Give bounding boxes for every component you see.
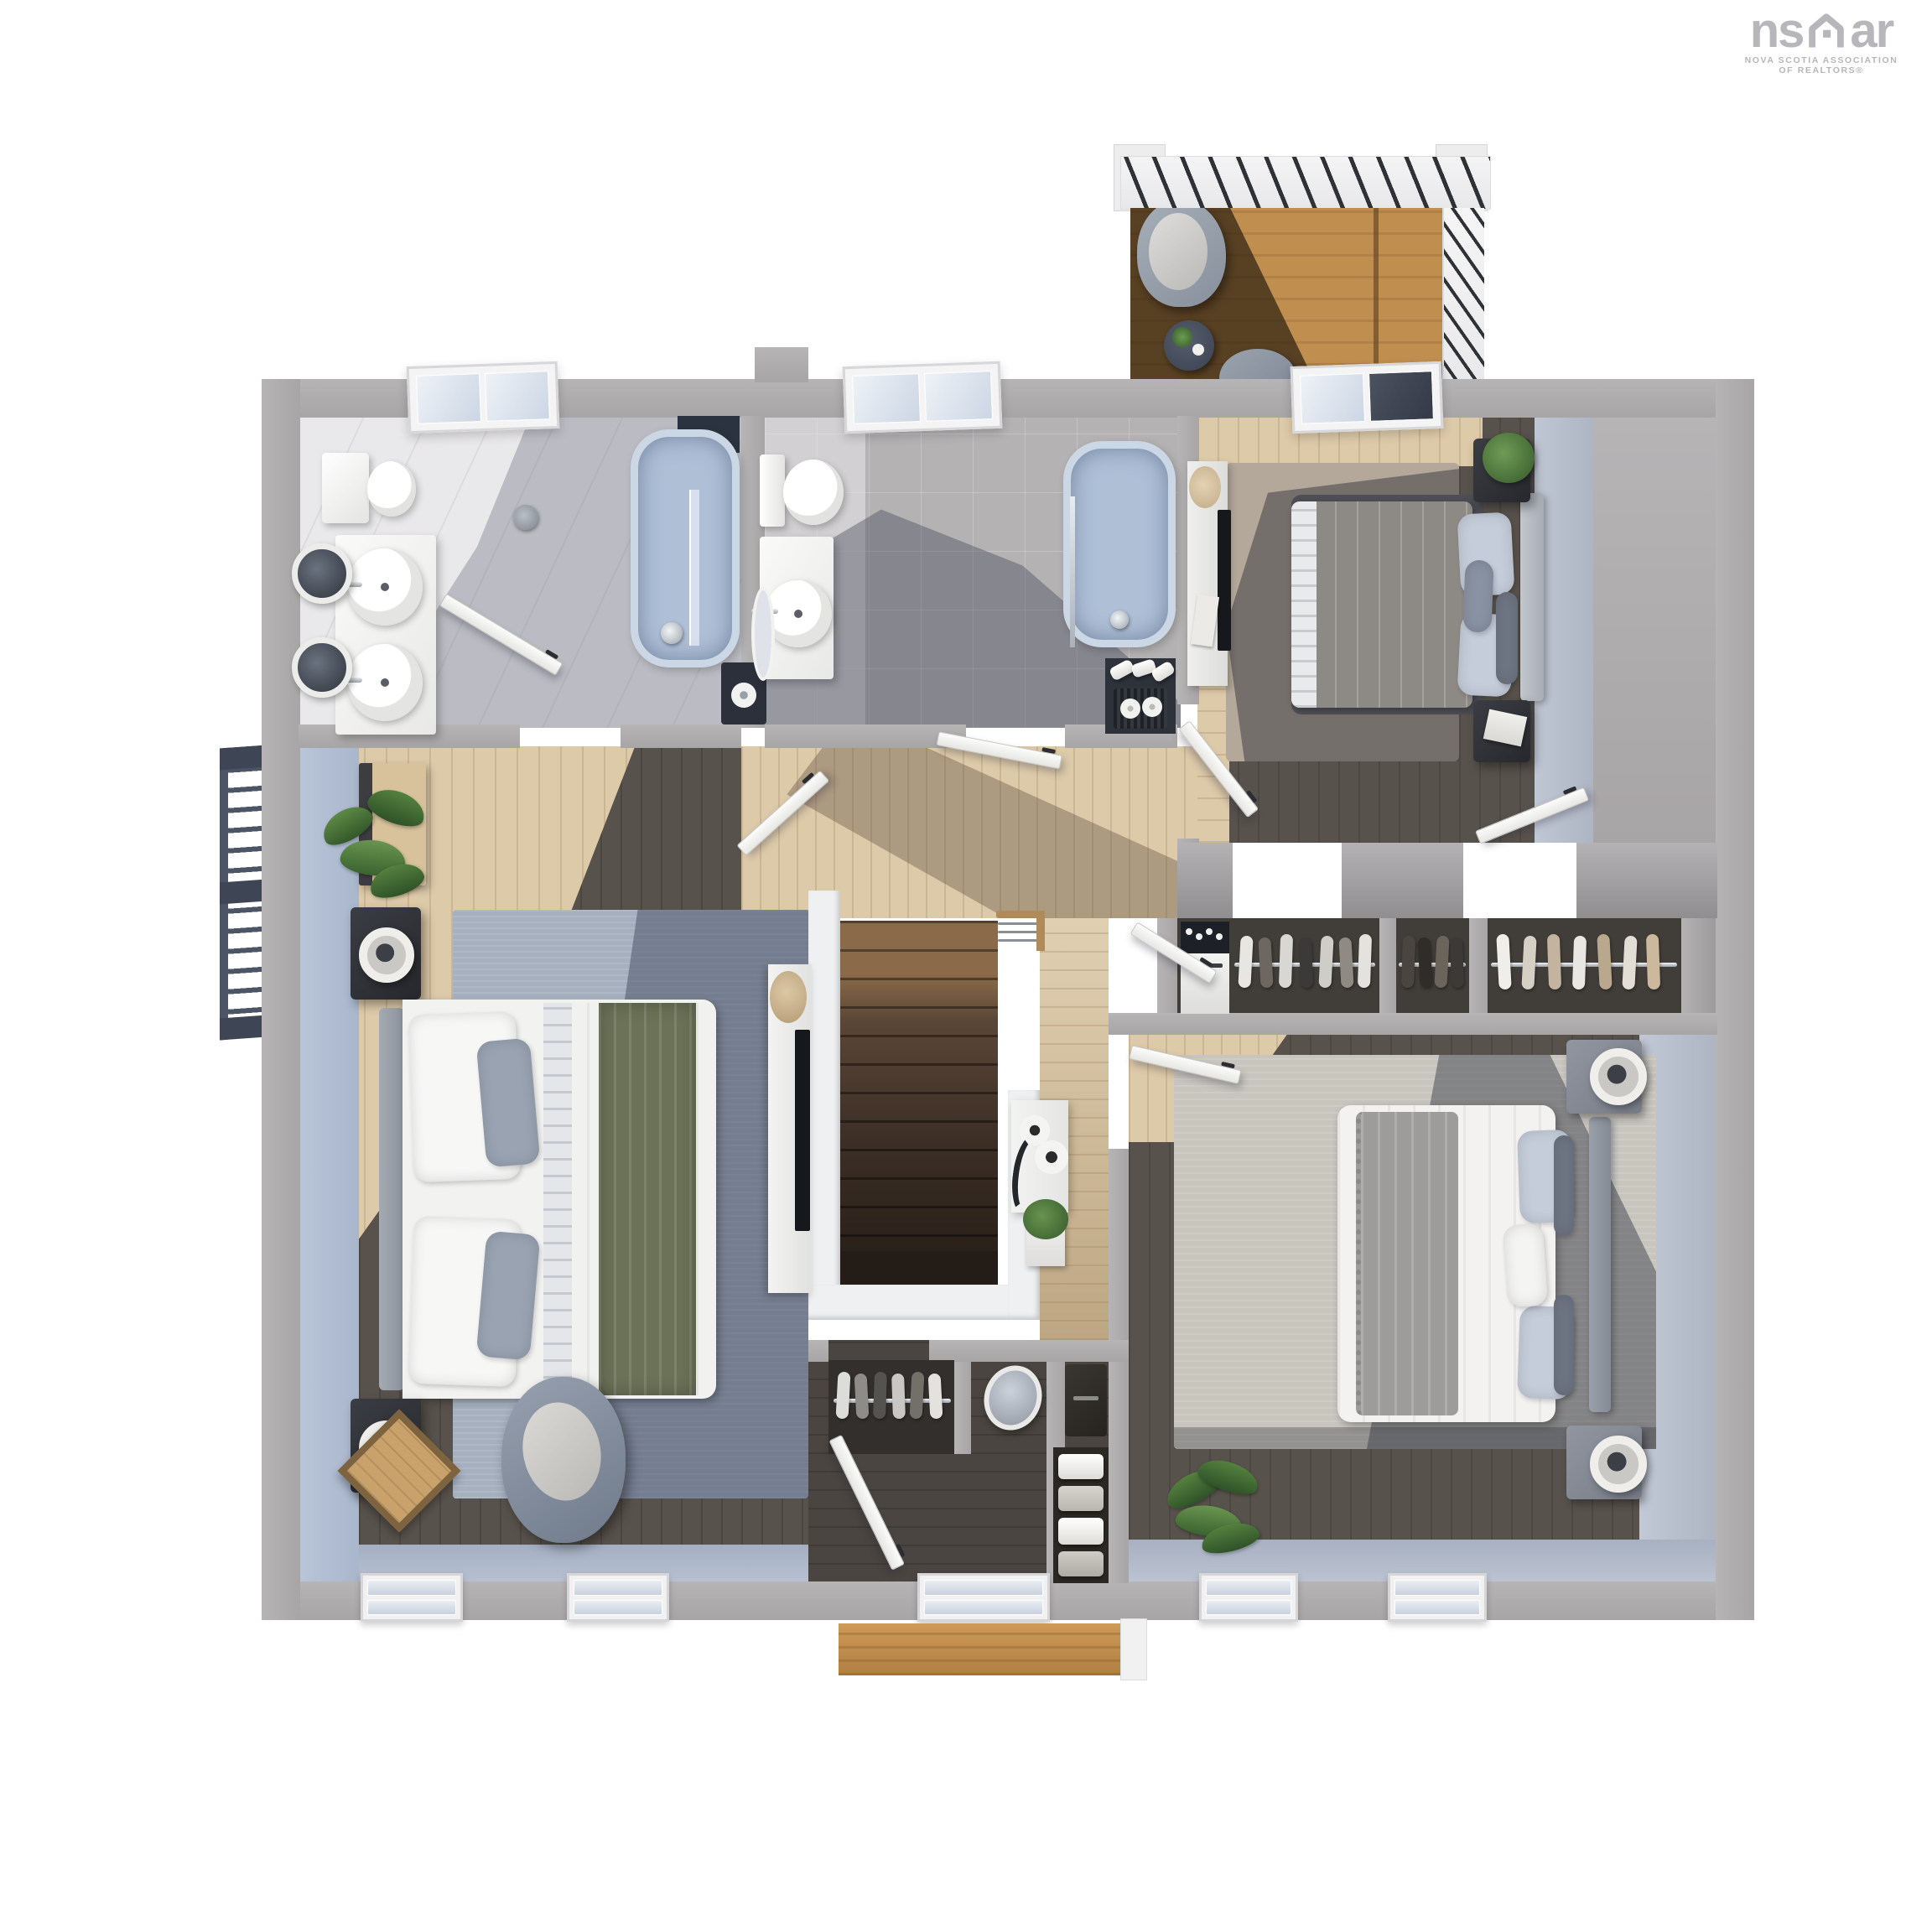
skylight-bedroom1: [1291, 361, 1444, 434]
window-pane: [1394, 1600, 1480, 1616]
leaning-mirror: [751, 587, 775, 681]
wall-closet-bottom: [1109, 1013, 1717, 1035]
linen-nook: [1105, 658, 1176, 734]
folded-clothes: [1058, 1454, 1104, 1479]
window-pane: [1206, 1600, 1291, 1616]
folded-clothes: [1058, 1551, 1104, 1576]
hanging-clothes: [1279, 934, 1293, 988]
bedroom1-outer-wall-top-view: [1593, 416, 1717, 843]
staircase: [840, 921, 998, 1251]
balcony-deck: [1130, 208, 1442, 387]
hanging-clothes: [1299, 937, 1313, 988]
pillow-gray: [476, 1230, 541, 1360]
pillow-dark: [1554, 1295, 1574, 1395]
hanging-clothes: [1450, 937, 1464, 988]
window-primary-1: [361, 1573, 463, 1622]
logo-subtitle-line1: NOVA SCOTIA ASSOCIATION: [1721, 55, 1922, 65]
shower-glass: [689, 490, 699, 646]
chair-cushion: [1149, 213, 1207, 290]
hanging-clothes: [873, 1372, 887, 1419]
porch-roof-trim: [1120, 1618, 1147, 1680]
throw-green: [599, 1003, 696, 1395]
window-pane: [924, 1600, 1043, 1616]
tub-faucet: [661, 622, 683, 644]
skylight-pane: [1300, 373, 1365, 424]
skylight-pane: [924, 371, 993, 422]
balcony-lounge-chair: [1137, 208, 1226, 307]
vanity-sink: [347, 644, 423, 721]
logo-text-ns: ns: [1750, 12, 1804, 50]
toilet-tank: [760, 454, 785, 527]
nsar-logo: ns ar NOVA SCOTIA ASSOCIATION OF REALTOR…: [1721, 12, 1922, 75]
hanging-clothes: [891, 1374, 906, 1419]
wall-bath2-south-a: [765, 724, 966, 748]
stair-wall-bottom: [808, 1285, 1040, 1320]
table-plant: [1172, 327, 1192, 347]
hall-console: [1011, 1100, 1068, 1213]
tv: [1218, 510, 1231, 651]
hanging-clothes: [836, 1372, 851, 1420]
bed: [1337, 1105, 1589, 1422]
wall-landing-top-b: [929, 1340, 1129, 1362]
palm-plant: [1164, 1457, 1265, 1566]
wall-bedroom1-south-a: [1177, 843, 1233, 918]
hanging-clothes: [1547, 934, 1561, 989]
potted-plant: [1483, 433, 1535, 483]
window-pane: [1394, 1580, 1480, 1596]
headboard: [1589, 1117, 1611, 1412]
wall-bedroom1-south-b: [1342, 843, 1463, 918]
hanging-clothes: [1646, 934, 1660, 989]
laundry-control-panel: [1181, 922, 1229, 953]
knob: [1186, 928, 1192, 935]
swivel-armchair: [501, 1377, 626, 1543]
hanging-clothes: [910, 1372, 925, 1420]
wall-bedroom1-south-c: [1576, 843, 1717, 918]
balcony-railing: [1442, 208, 1484, 387]
leaf: [364, 782, 430, 833]
folded-clothes: [1058, 1518, 1104, 1545]
railing-newel: [1036, 911, 1045, 951]
vanity-sink: [347, 548, 423, 626]
skylight-pane: [416, 373, 481, 424]
logo-text-ar: ar: [1850, 12, 1893, 50]
pillow-gray: [476, 1037, 541, 1167]
dried-flowers: [1189, 466, 1221, 508]
window-pane: [924, 1580, 1043, 1596]
window-bedroom2-1: [1199, 1573, 1298, 1622]
hanging-clothes: [1338, 937, 1353, 989]
chair-cushion: [514, 1395, 610, 1509]
toilet-bowl: [783, 460, 844, 525]
hanging-clothes: [854, 1374, 870, 1420]
closet-divider-1: [1379, 918, 1396, 1013]
window-pane: [367, 1580, 456, 1596]
table-cup: [1192, 344, 1204, 356]
landing-divider: [954, 1362, 971, 1454]
round-mirror: [292, 543, 352, 604]
handle: [1073, 1396, 1098, 1400]
toilet-tank: [322, 453, 369, 523]
wall-landing-top-a: [808, 1340, 828, 1362]
knob: [1206, 928, 1213, 935]
potted-plant-large: [320, 785, 434, 911]
skylight-ensuite: [407, 361, 560, 434]
hanging-clothes: [928, 1374, 943, 1420]
throw-gray: [1356, 1112, 1458, 1415]
skylight-pane: [1368, 371, 1434, 422]
pillow-lumbar-white: [1503, 1223, 1549, 1307]
dried-plant: [770, 971, 807, 1023]
bed: [1291, 495, 1545, 714]
ensuite-bathtub: [631, 429, 740, 667]
pergola-beams: [1120, 156, 1491, 210]
drum-lamp: [359, 927, 414, 983]
skylight-main-bath: [843, 361, 1003, 434]
hanging-clothes: [1572, 936, 1587, 989]
stair-wall-left: [808, 891, 840, 1320]
headboard: [1520, 493, 1544, 701]
duvet-fold-edge: [543, 1003, 572, 1395]
vanity-sink: [765, 580, 832, 647]
skylight-pane: [852, 373, 921, 424]
headboard: [379, 1008, 404, 1390]
paper-roll: [731, 683, 756, 708]
outer-wall-right: [1716, 379, 1754, 1620]
dark-dresser: [1065, 1364, 1107, 1436]
stair-void: [840, 1251, 998, 1286]
planter-greenery: [1023, 1199, 1068, 1239]
duvet-gray: [1291, 501, 1472, 708]
wall-closet-left: [1157, 918, 1177, 1013]
knob: [1196, 933, 1202, 940]
rolled-towel: [1120, 699, 1140, 719]
closet-right-face: [1681, 918, 1717, 1013]
tv: [795, 1030, 810, 1231]
pillow-lumbar-gray: [1463, 559, 1494, 632]
nsar-wordmark: ns ar: [1721, 12, 1922, 50]
hanging-clothes: [1417, 937, 1432, 989]
chimney-stub: [755, 347, 808, 382]
pillow-dark: [1554, 1135, 1574, 1236]
drum-lamp: [1590, 1436, 1647, 1493]
balcony-side-table: [1164, 320, 1214, 371]
shower-rail: [1070, 496, 1075, 647]
folded-clothes: [1058, 1486, 1104, 1511]
window-pane: [1206, 1580, 1291, 1596]
hanging-clothes: [1258, 937, 1273, 989]
tub-faucet: [1110, 610, 1129, 629]
wall-bedroom2-left: [1109, 1149, 1129, 1583]
shower-head: [513, 505, 538, 530]
folded-clothes-shelf: [1053, 1447, 1109, 1583]
knob: [1216, 933, 1223, 940]
floorplan-render: ns ar NOVA SCOTIA ASSOCIATION OF REALTOR…: [0, 0, 1932, 1932]
pillow-dark: [1496, 592, 1518, 684]
skylight-pane: [485, 371, 550, 422]
toilet-bowl: [367, 461, 416, 517]
porch-roof: [839, 1623, 1120, 1675]
rolled-towel: [1142, 697, 1162, 717]
towel-basket: [1114, 688, 1167, 729]
round-mirror: [292, 637, 352, 698]
wall-bath1-south-b: [621, 724, 741, 748]
window-pane: [574, 1600, 662, 1616]
closet-divider-2: [1469, 918, 1488, 1013]
window-bedroom2-2: [1388, 1573, 1487, 1622]
window-pane: [367, 1600, 456, 1616]
hanging-clothes: [1401, 936, 1415, 988]
window-landing: [917, 1573, 1050, 1622]
window-pane: [574, 1580, 662, 1596]
bed: [379, 1000, 716, 1399]
hanging-clothes: [1358, 934, 1372, 988]
logo-subtitle-line2: OF REALTORS®: [1721, 65, 1922, 75]
window-primary-2: [567, 1573, 669, 1622]
drum-lamp: [1590, 1048, 1647, 1105]
house-icon: [1805, 12, 1848, 50]
stair-railing: [996, 911, 1045, 951]
duvet-fold-edge: [1291, 501, 1317, 708]
